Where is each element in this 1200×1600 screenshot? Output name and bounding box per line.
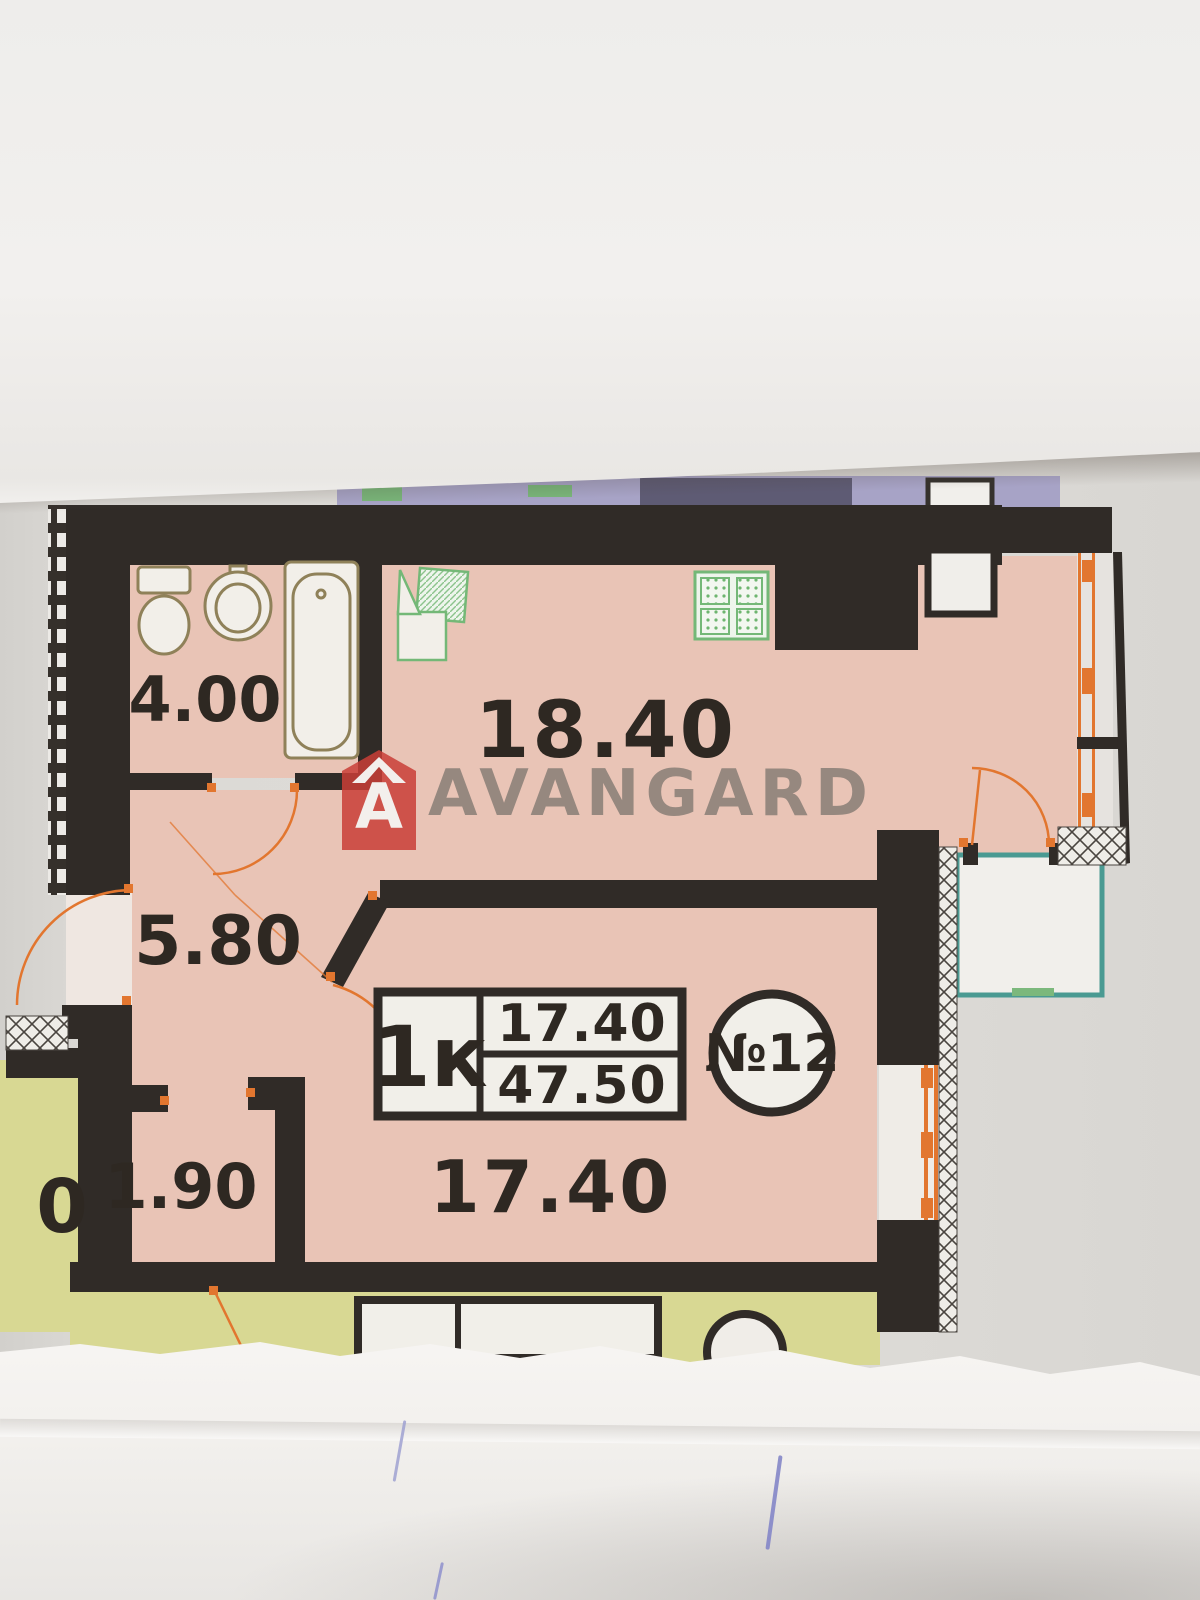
toilet-icon	[138, 567, 190, 654]
living-room-window	[1077, 552, 1130, 865]
unit-number-label: №12	[705, 1028, 840, 1080]
wall-bedroom-right-upper	[877, 830, 939, 1065]
wall-bedroom-right-lower	[877, 1220, 939, 1332]
top-paper-sheet	[0, 0, 1200, 520]
bathtub-icon	[285, 562, 358, 758]
wall-left-upper	[66, 505, 130, 895]
avangard-logo-letter: A	[342, 776, 416, 838]
entrance-opening	[66, 893, 132, 1007]
info-type-label: 1к	[372, 1015, 487, 1099]
balcony	[957, 855, 1102, 996]
wall-mid-horizontal	[380, 880, 877, 908]
paper-fold	[0, 1419, 1200, 1450]
info-room-area: 17.40	[497, 998, 666, 1050]
vent-shaft	[928, 550, 994, 614]
outer-wall-line	[1113, 552, 1130, 865]
room-area-label-bathroom: 4.00	[129, 669, 282, 731]
bottom-paper-sheet	[0, 1330, 1200, 1600]
balcony-dimension-mark	[1012, 988, 1054, 996]
wall-top-right	[1000, 507, 1112, 553]
left-window-hatch	[6, 1016, 68, 1050]
wall-storage-top-right	[248, 1077, 305, 1110]
floor-plan-photo: A AVANGARD 4.00 18.40 5.80 1.90 17.40 0 …	[0, 0, 1200, 1600]
balcony-wall-hatch	[939, 847, 957, 1332]
avangard-logo-icon: A	[342, 750, 416, 850]
wall-under-left-window	[6, 1048, 78, 1078]
left-wall-insulation-hatch	[48, 505, 66, 895]
bedroom-window	[879, 1063, 939, 1220]
stove-icon	[695, 572, 768, 639]
adjacent-area-digit: 0	[36, 1170, 88, 1244]
kitchen-vent-block	[775, 555, 918, 650]
room-area-label-bedroom: 17.40	[430, 1151, 673, 1223]
info-total-area: 47.50	[497, 1060, 666, 1112]
corner-wall-hatch	[1058, 827, 1126, 865]
wall-bottom	[70, 1262, 880, 1292]
wall-storage-top-left	[100, 1085, 168, 1112]
wall-bathroom-bottom-left	[100, 773, 212, 790]
room-area-label-storage: 1.90	[105, 1156, 258, 1218]
room-area-label-hallway: 5.80	[134, 908, 302, 976]
room-area-label-living-kitchen: 18.40	[475, 692, 737, 770]
